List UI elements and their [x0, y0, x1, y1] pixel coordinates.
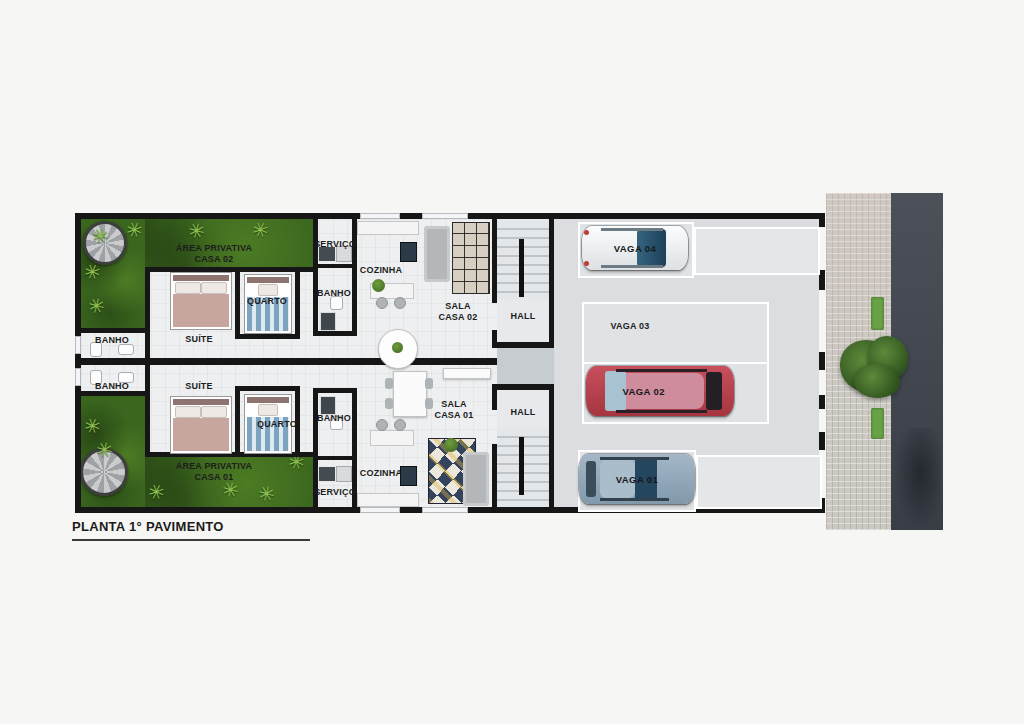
wall — [313, 219, 318, 336]
label-area-privativa-casa01: ÁREA PRIVATIVACASA 01 — [138, 461, 290, 483]
wall — [819, 395, 825, 409]
car-rear-window — [706, 372, 722, 410]
grass-strip — [871, 408, 884, 439]
kitchen-counter-casa02 — [357, 221, 419, 235]
car-white-vaga04: VAGA 04 — [582, 226, 688, 270]
plant-icon — [372, 279, 385, 292]
window — [422, 213, 468, 219]
stool — [376, 419, 388, 431]
parking-area — [694, 227, 820, 275]
wall — [352, 219, 357, 336]
sofa-casa02 — [424, 226, 450, 282]
wall — [313, 456, 356, 460]
label-vaga04: VAGA 04 — [582, 243, 688, 254]
laundry-tub-casa01 — [318, 466, 336, 482]
car-side-windows — [600, 457, 670, 460]
window — [360, 507, 400, 513]
bed-suite-casa02 — [170, 272, 232, 330]
label-cozinha-casa02: COZINHA — [353, 265, 409, 276]
car-side-windows — [616, 410, 708, 413]
wall — [313, 264, 356, 268]
label-area-privativa-casa02: ÁREA PRIVATIVACASA 02 — [138, 243, 290, 265]
wall — [549, 213, 554, 342]
wall — [145, 365, 150, 457]
car-side-windows — [601, 265, 662, 268]
label-suite-casa01: SUÍTE — [168, 381, 230, 392]
chair — [385, 378, 393, 389]
label-banho-right-casa01: BANHO — [310, 413, 358, 424]
label-hall-casa02: HALL — [495, 311, 551, 322]
label-banho-left-casa01: BANHO — [82, 381, 142, 392]
label-hall-casa01: HALL — [495, 407, 551, 418]
label-sala-casa02: SALACASA 02 — [423, 301, 493, 323]
car-side-windows — [616, 369, 708, 372]
label-cozinha-casa01: COZINHA — [353, 468, 409, 479]
label-sala-casa01: SALACASA 01 — [419, 399, 489, 421]
car-taillight — [584, 230, 589, 235]
plant-icon — [444, 438, 458, 452]
parking-area — [696, 455, 822, 509]
stair-rail — [519, 239, 524, 297]
window — [75, 368, 81, 386]
window — [75, 336, 81, 354]
window — [360, 213, 400, 219]
kitchen-bar-casa01 — [370, 430, 414, 446]
tree-icon — [854, 364, 900, 398]
window — [422, 507, 468, 513]
label-suite-casa02: SUÍTE — [168, 334, 230, 345]
plant-icon — [392, 342, 403, 353]
parking-spot-vaga03 — [582, 302, 769, 364]
car-side-windows — [600, 498, 670, 501]
tree-shadow — [895, 428, 941, 528]
wall — [819, 352, 825, 370]
console-casa01 — [443, 368, 491, 379]
label-vaga01: VAGA 01 — [579, 474, 695, 485]
wall — [492, 444, 497, 507]
rug-casa02 — [452, 222, 490, 294]
car-side-windows — [601, 228, 662, 231]
car-blue-vaga01: VAGA 01 — [579, 454, 695, 504]
plan-title: PLANTA 1° PAVIMENTO — [72, 519, 224, 534]
shower — [320, 312, 336, 331]
label-servico-casa02: SERVIÇO — [311, 239, 359, 250]
wall — [235, 334, 299, 339]
wall — [492, 213, 497, 303]
wall — [235, 386, 299, 391]
stair-rail — [519, 437, 524, 495]
wall — [75, 328, 147, 333]
wall — [235, 386, 240, 457]
stool — [394, 297, 406, 309]
grass-strip — [871, 297, 884, 330]
entry-corridor — [497, 348, 554, 384]
label-servico-casa01: SERVIÇO — [311, 487, 359, 498]
label-banho-right-casa02: BANHO — [310, 288, 358, 299]
kitchen-counter-casa01 — [357, 493, 419, 507]
car-taillight — [584, 261, 589, 266]
wall — [819, 213, 825, 227]
stool — [394, 419, 406, 431]
floor-plan-page: ✳ ✳ ✳ ✳ ✳ ✳ ✳ ✳ ✳ ✳ ✳ ✳ — [0, 0, 1024, 724]
label-banho-left-casa02: BANHO — [82, 335, 142, 346]
chair — [425, 378, 433, 389]
cooktop-casa02 — [400, 242, 417, 262]
title-underline — [72, 539, 310, 541]
wall — [819, 432, 825, 450]
label-quarto-casa02: QUARTO — [238, 296, 296, 307]
wall — [313, 331, 356, 336]
wall — [492, 342, 554, 348]
wall — [492, 384, 554, 390]
chair — [385, 398, 393, 409]
label-quarto-casa01: QUARTO — [248, 419, 306, 430]
car-red-vaga02: VAGA 02 — [586, 366, 734, 416]
wall — [75, 358, 497, 365]
stool — [376, 297, 388, 309]
wall — [313, 388, 356, 393]
wall — [145, 267, 150, 365]
label-vaga03: VAGA 03 — [594, 321, 666, 332]
label-vaga02: VAGA 02 — [592, 386, 696, 397]
bed-suite-casa01 — [170, 396, 232, 454]
washer-casa01 — [336, 466, 352, 482]
sofa-casa01 — [463, 452, 489, 506]
